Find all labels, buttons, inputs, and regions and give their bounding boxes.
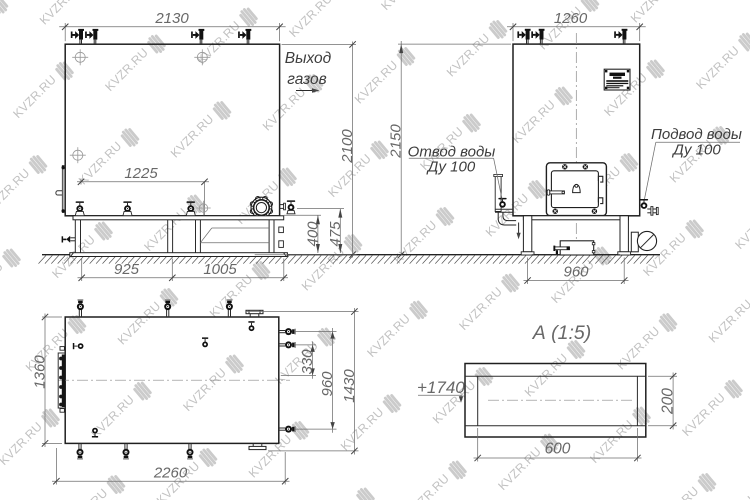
svg-text:330: 330	[299, 349, 316, 375]
svg-text:1260: 1260	[554, 10, 588, 27]
svg-text:Ду 100: Ду 100	[671, 142, 721, 159]
svg-text:газов: газов	[287, 71, 327, 88]
svg-text:960: 960	[319, 371, 336, 397]
svg-text:1005: 1005	[203, 261, 237, 278]
svg-text:+1740: +1740	[417, 378, 465, 397]
svg-text:1430: 1430	[341, 369, 358, 403]
svg-text:Выход: Выход	[285, 50, 332, 67]
svg-text:600: 600	[545, 441, 571, 458]
svg-text:475: 475	[327, 221, 344, 247]
svg-text:А (1:5): А (1:5)	[532, 322, 592, 344]
svg-text:200: 200	[660, 388, 677, 415]
svg-text:2260: 2260	[153, 465, 188, 482]
svg-text:2130: 2130	[154, 10, 189, 27]
svg-text:925: 925	[114, 261, 140, 278]
svg-text:960: 960	[563, 264, 589, 281]
svg-text:Ду 100: Ду 100	[426, 158, 476, 175]
svg-text:1225: 1225	[124, 165, 158, 182]
svg-text:1360: 1360	[32, 355, 49, 389]
svg-text:400: 400	[304, 221, 321, 247]
svg-text:2150: 2150	[388, 124, 405, 159]
svg-text:Подвод воды: Подвод воды	[651, 126, 742, 143]
svg-text:2100: 2100	[339, 129, 356, 164]
